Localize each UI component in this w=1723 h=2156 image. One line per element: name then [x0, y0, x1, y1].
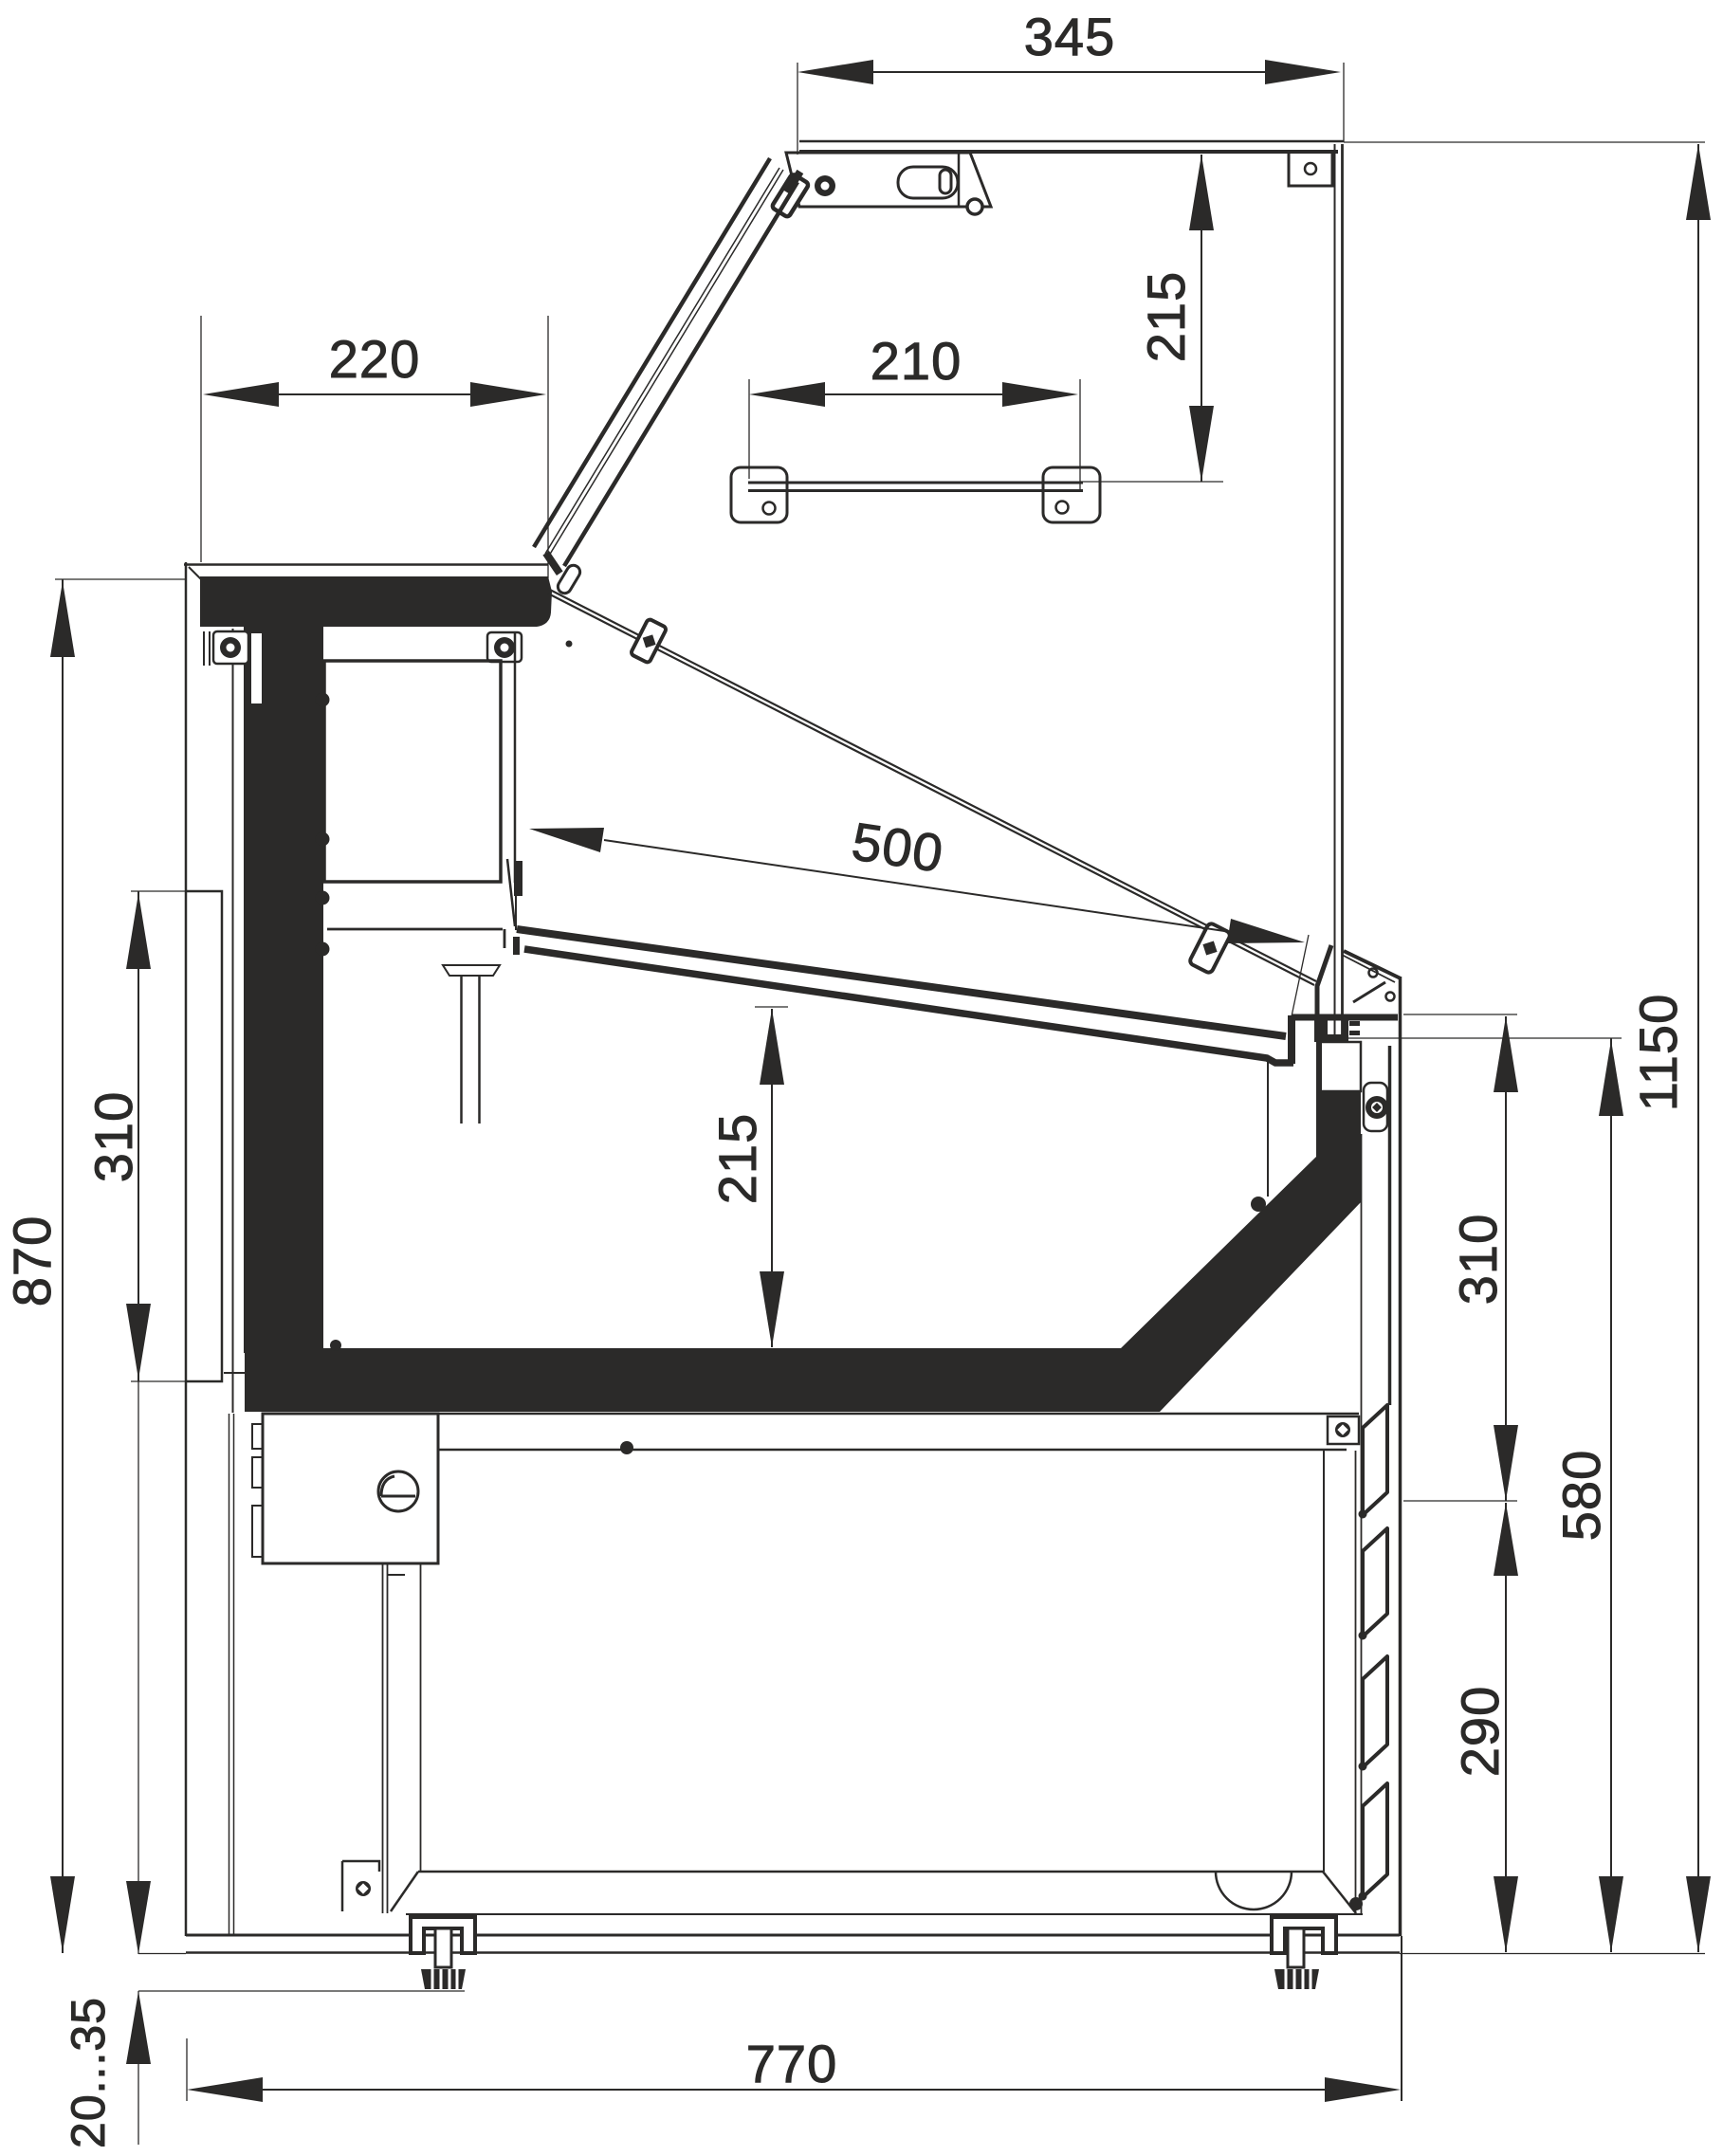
svg-text:220: 220 — [329, 329, 420, 389]
svg-text:1150: 1150 — [1628, 994, 1688, 1111]
svg-text:580: 580 — [1551, 1450, 1611, 1541]
svg-text:870: 870 — [2, 1215, 62, 1306]
svg-text:770: 770 — [746, 2034, 837, 2093]
svg-text:310: 310 — [1448, 1214, 1508, 1305]
svg-text:210: 210 — [871, 331, 962, 391]
svg-text:215: 215 — [707, 1113, 767, 1204]
svg-text:215: 215 — [1136, 271, 1196, 362]
svg-text:290: 290 — [1450, 1686, 1510, 1777]
svg-text:310: 310 — [83, 1091, 143, 1182]
svg-text:20...35: 20...35 — [62, 1997, 115, 2148]
svg-text:345: 345 — [1024, 7, 1115, 66]
